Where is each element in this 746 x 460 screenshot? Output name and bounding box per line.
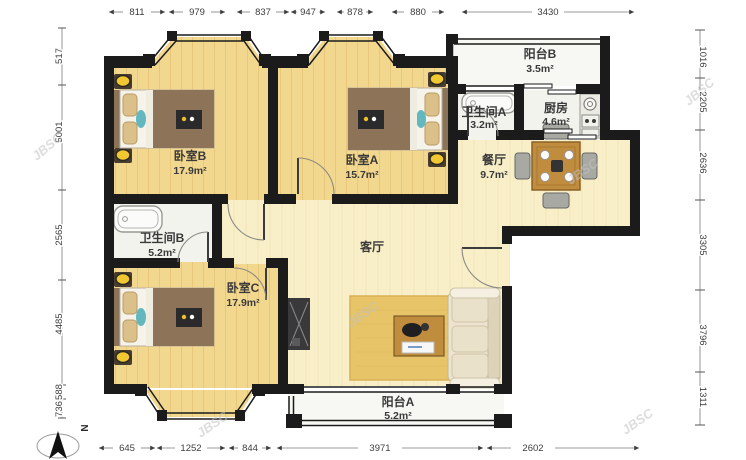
room-area-bath-b: 5.2m² (148, 247, 176, 259)
room-area-balcony-a: 5.2m² (384, 410, 412, 422)
room-label-balcony-b: 阳台B (524, 46, 557, 61)
room-label-bath-a: 卫生间A (462, 104, 507, 119)
bathtub-b (114, 206, 162, 232)
dim-label: 588 (54, 384, 65, 400)
room-label-dining: 餐厅 (482, 152, 506, 167)
dim-label: 979 (189, 7, 205, 18)
north-label: N (80, 424, 91, 431)
coffee-table (394, 316, 444, 356)
kitchen-counter (580, 94, 601, 138)
compass: N (37, 424, 91, 459)
dim-label: 1016 (697, 46, 708, 67)
dim-label: 811 (129, 7, 144, 18)
dim-label: 3971 (369, 443, 390, 454)
dim-label: 2602 (522, 443, 543, 454)
floor-plan: 卧室B 17.9m² 卧室A 15.7m² 阳台B 3.5m² 卫生间A 3.2… (0, 0, 746, 460)
room-area-bath-a: 3.2m² (470, 119, 498, 131)
tv-cabinet (288, 298, 310, 350)
room-area-dining: 9.7m² (480, 169, 508, 181)
dim-label: 837 (255, 7, 271, 18)
dim-label: 1252 (180, 443, 201, 454)
sofa (448, 288, 500, 388)
dim-label: 878 (347, 7, 363, 18)
dim-label: 736 (54, 401, 65, 417)
dim-label: 645 (119, 443, 135, 454)
dim-label: 947 (300, 7, 316, 18)
room-label-balcony-a: 阳台A (382, 394, 415, 409)
room-area-balcony-b: 3.5m² (526, 63, 554, 75)
room-label-bedroom-a: 卧室A (346, 152, 379, 167)
room-area-bedroom-b: 17.9m² (173, 165, 207, 177)
balcony-b-floor (450, 38, 602, 86)
dim-label: 2636 (697, 152, 708, 173)
dim-label: 3796 (697, 324, 708, 345)
dim-label: 1311 (697, 387, 708, 407)
kitchen-sliding-door (544, 129, 572, 133)
living-balcony-sill (304, 387, 494, 392)
dim-label: 880 (410, 7, 426, 18)
dim-label: 3305 (697, 234, 708, 255)
room-area-bedroom-a: 15.7m² (345, 169, 379, 181)
room-area-kitchen: 4.6m² (542, 116, 570, 128)
dim-label: 3430 (537, 7, 558, 18)
watermark: JBSC (619, 405, 657, 438)
dim-label: 844 (242, 443, 258, 454)
room-label-kitchen: 厨房 (544, 100, 568, 115)
room-label-bath-b: 卫生间B (140, 230, 185, 245)
dim-label: 4485 (54, 313, 65, 334)
room-label-bedroom-b: 卧室B (174, 148, 207, 163)
room-label-bedroom-c: 卧室C (227, 280, 260, 295)
bath-a-window (466, 86, 514, 91)
dim-label: 2565 (54, 224, 65, 245)
room-label-living: 客厅 (359, 239, 384, 254)
room-area-bedroom-c: 17.9m² (226, 297, 260, 309)
dim-label: 517 (54, 48, 65, 64)
balcony-b-sliding-door (524, 84, 552, 88)
